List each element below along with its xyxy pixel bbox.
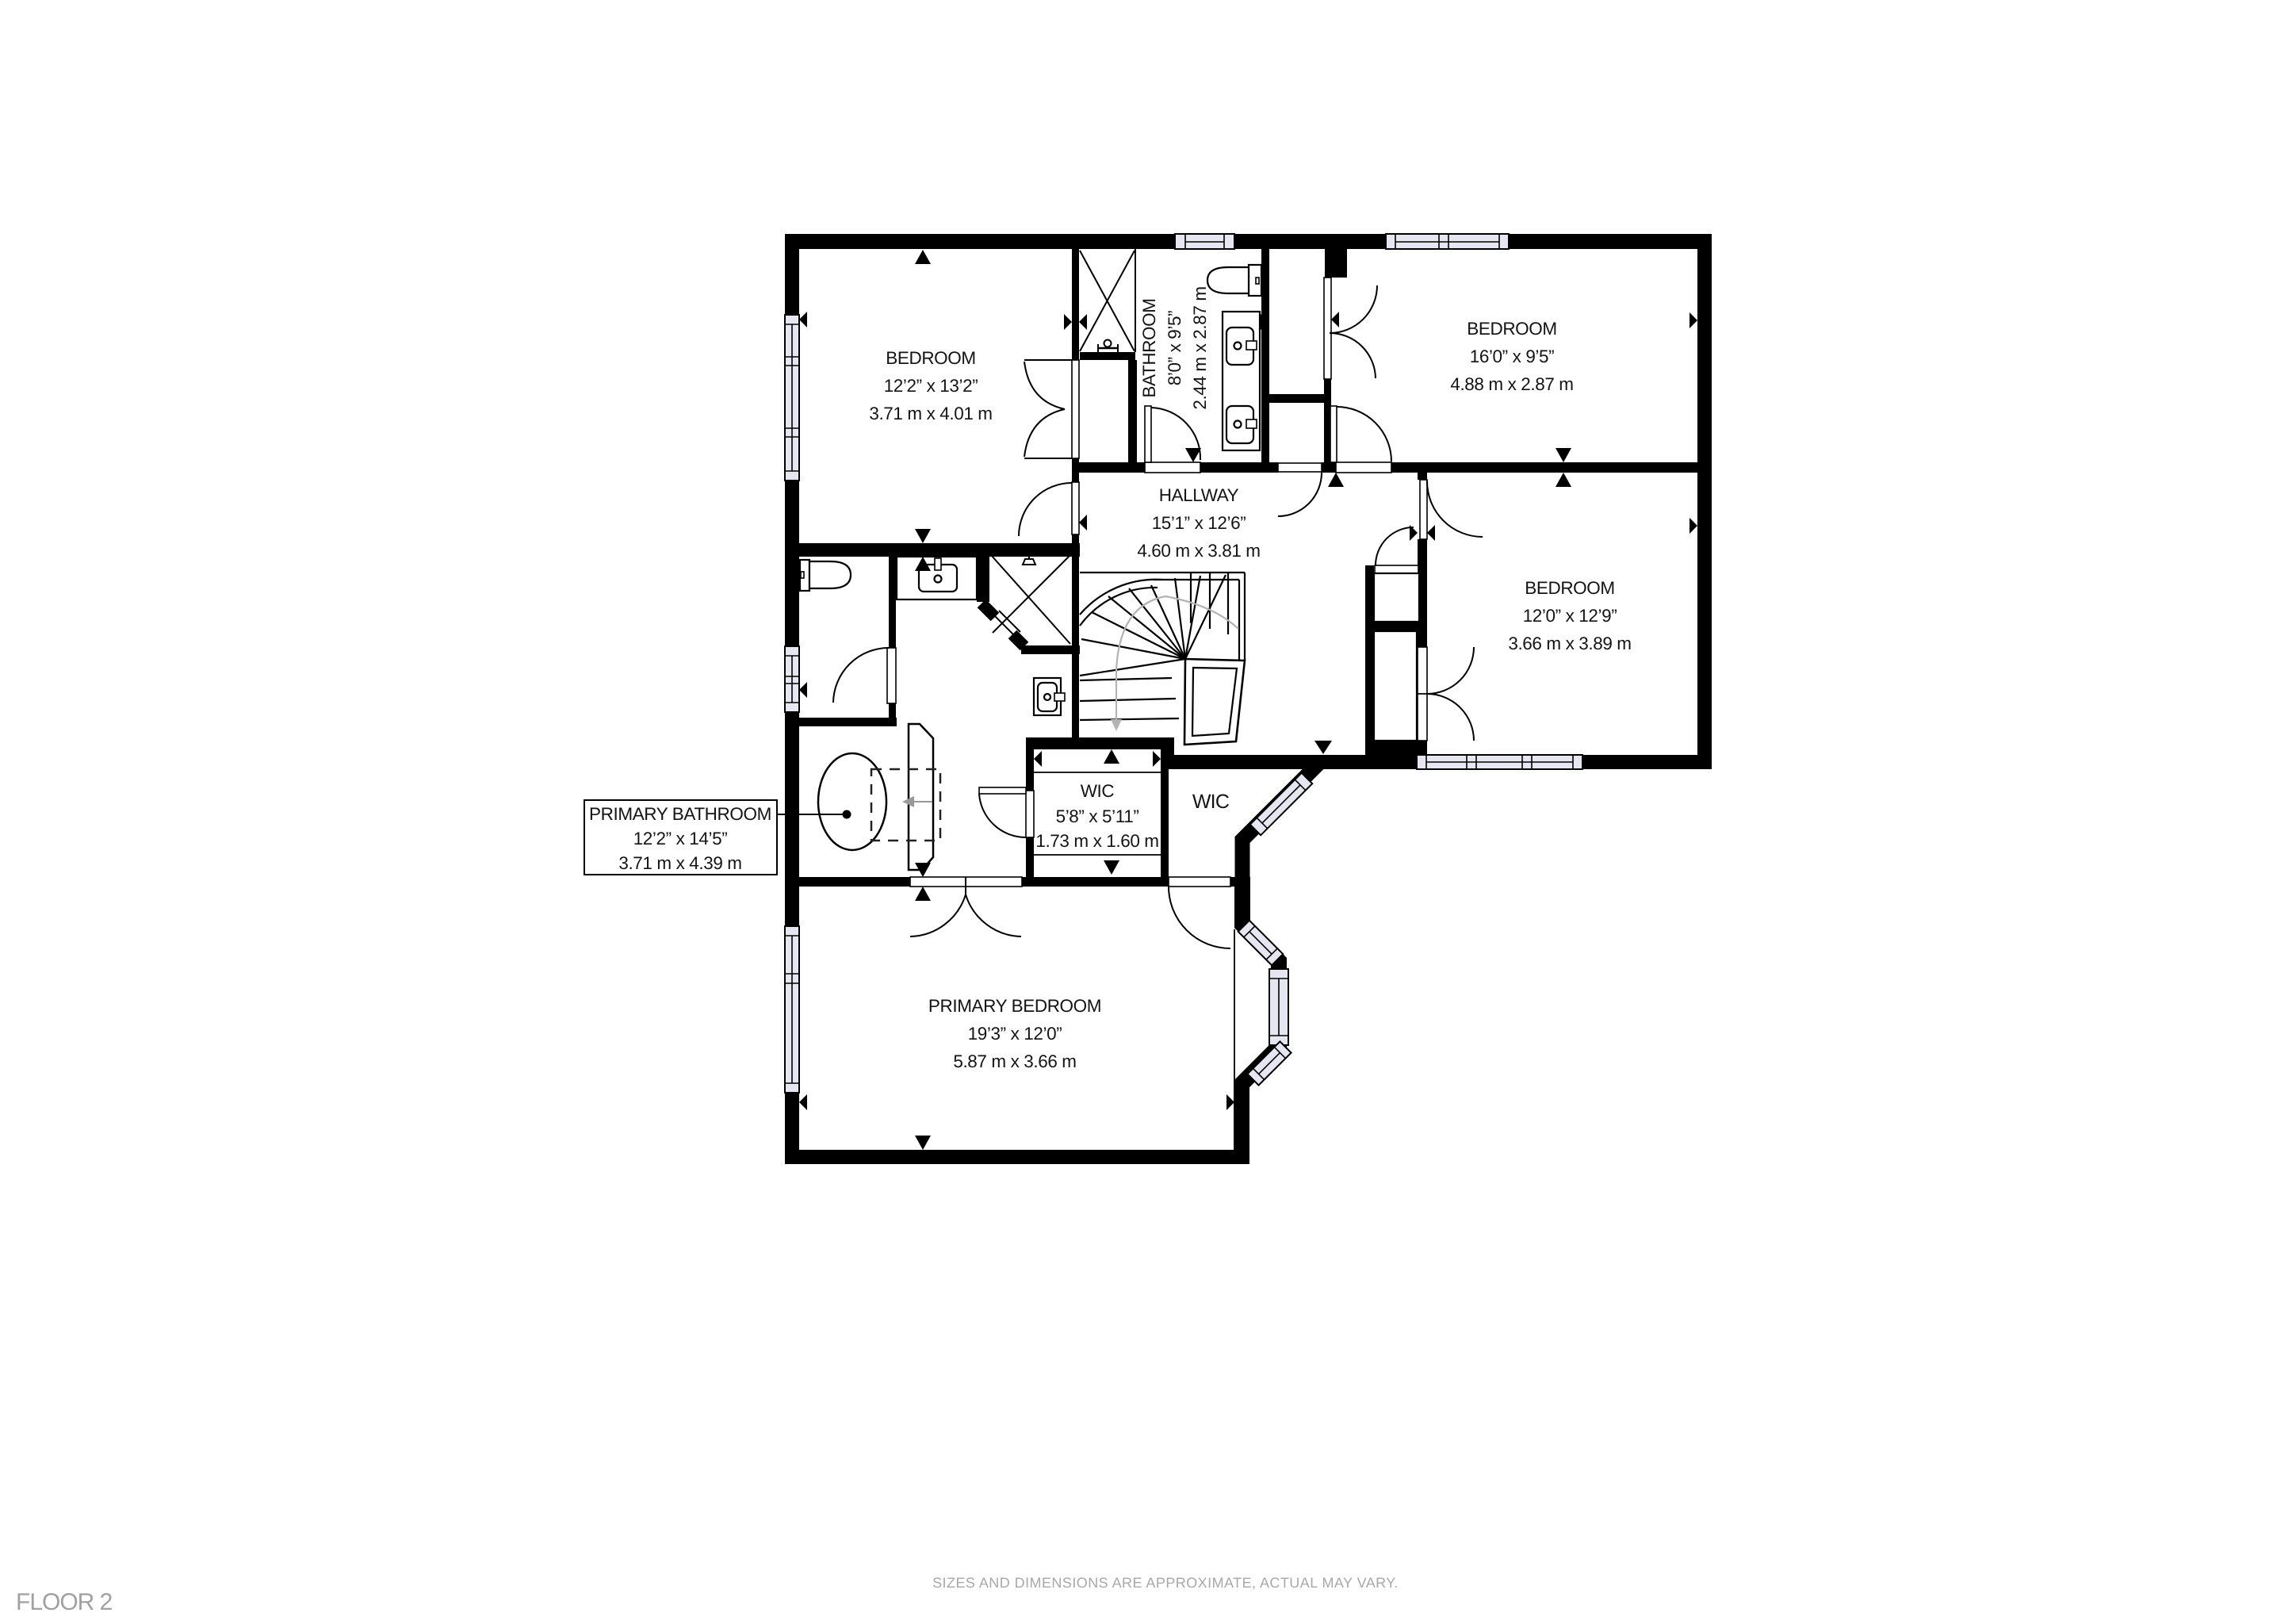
svg-text:12’0” x 12’9”: 12’0” x 12’9” (1523, 606, 1617, 626)
svg-text:WIC: WIC (1081, 781, 1115, 801)
svg-text:BEDROOM: BEDROOM (886, 348, 975, 368)
svg-text:12’2” x 14’5”: 12’2” x 14’5” (633, 829, 728, 848)
svg-text:BEDROOM: BEDROOM (1525, 578, 1614, 598)
svg-text:16’0” x 9’5”: 16’0” x 9’5” (1470, 347, 1555, 366)
svg-text:FLOOR 2: FLOOR 2 (16, 1589, 113, 1615)
svg-text:3.71 m x 4.39 m: 3.71 m x 4.39 m (618, 853, 741, 873)
svg-text:4.88 m x 2.87 m: 4.88 m x 2.87 m (1450, 374, 1573, 394)
svg-text:19’3” x 12’0”: 19’3” x 12’0” (968, 1024, 1062, 1044)
svg-text:BEDROOM: BEDROOM (1467, 319, 1556, 339)
svg-text:3.71 m x 4.01 m: 3.71 m x 4.01 m (869, 404, 992, 423)
svg-text:12’2” x 13’2”: 12’2” x 13’2” (884, 376, 978, 396)
svg-text:WIC: WIC (1192, 791, 1230, 813)
svg-text:8’0” x 9’5”: 8’0” x 9’5” (1165, 311, 1184, 385)
svg-text:5.87 m x 3.66 m: 5.87 m x 3.66 m (953, 1051, 1076, 1071)
svg-text:SIZES AND DIMENSIONS ARE APPRO: SIZES AND DIMENSIONS ARE APPROXIMATE, AC… (932, 1575, 1399, 1591)
svg-text:4.60 m x 3.81 m: 4.60 m x 3.81 m (1137, 541, 1260, 561)
svg-text:1.73 m x 1.60 m: 1.73 m x 1.60 m (1035, 831, 1158, 851)
svg-text:PRIMARY BEDROOM: PRIMARY BEDROOM (928, 996, 1101, 1016)
svg-text:3.66 m x 3.89 m: 3.66 m x 3.89 m (1508, 634, 1631, 653)
svg-text:5’8” x 5’11”: 5’8” x 5’11” (1056, 806, 1139, 826)
svg-text:15’1” x 12’6”: 15’1” x 12’6” (1152, 513, 1246, 533)
svg-text:BATHROOM: BATHROOM (1139, 298, 1159, 397)
svg-text:PRIMARY BATHROOM: PRIMARY BATHROOM (589, 804, 771, 824)
svg-text:HALLWAY: HALLWAY (1159, 485, 1239, 505)
svg-text:2.44 m x 2.87 m: 2.44 m x 2.87 m (1190, 286, 1210, 409)
